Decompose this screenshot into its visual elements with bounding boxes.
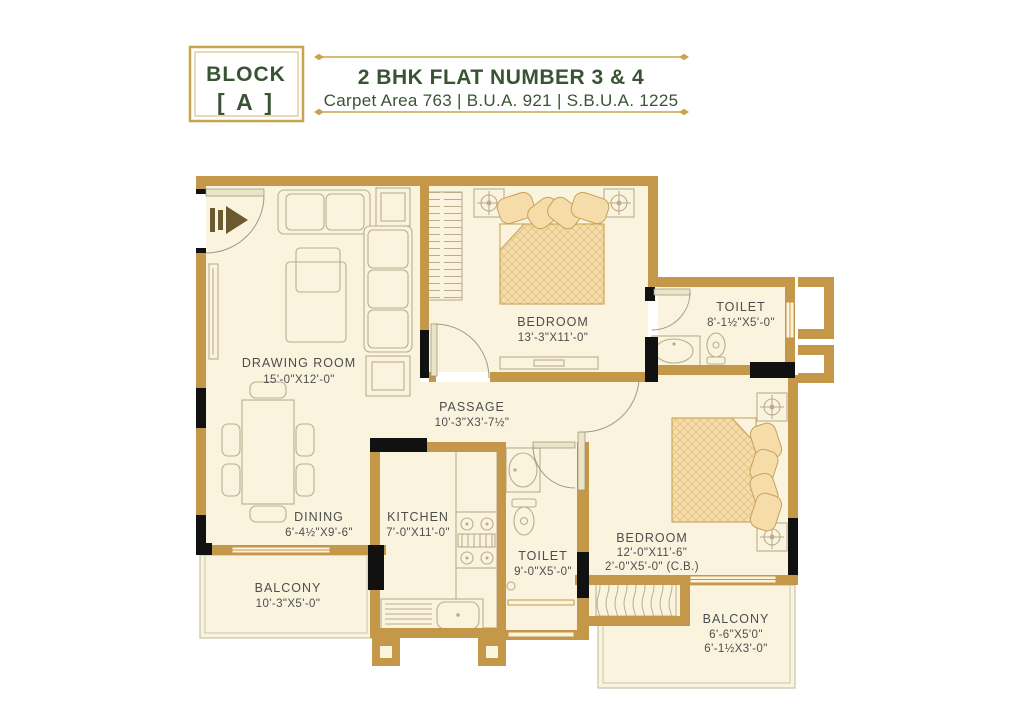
- bedroom-2-label: BEDROOM: [616, 531, 688, 545]
- bedroom-1-label: BEDROOM: [517, 315, 589, 329]
- dining-size: 6'-4½"X9'-6": [285, 527, 353, 539]
- sink-icon: [381, 599, 483, 632]
- wc-icon: [707, 333, 725, 364]
- floor-plan-page: BLOCK [ A ] 2 BHK FLAT NUMBER 3 & 4 Carp…: [0, 0, 1024, 724]
- drawing-room-size: 15'-0"X12'-0": [263, 374, 334, 386]
- bedroom-2-size: 12'-0"X11'-6": [617, 547, 688, 559]
- toilet-1-fixtures: [652, 333, 725, 367]
- kitchen-label: KITCHEN: [387, 510, 449, 524]
- passage-label: PASSAGE: [439, 400, 505, 414]
- bed-icon: [495, 190, 611, 304]
- column-block: [372, 638, 506, 666]
- balcony-2-size: 6'-6"X5'0": [709, 629, 763, 641]
- bedroom-1-size: 13'-3"X11'-0": [518, 332, 589, 344]
- window-icon: [508, 600, 574, 605]
- page-subtitle: Carpet Area 763 | B.U.A. 921 | S.B.U.A. …: [324, 91, 679, 110]
- exterior-projection: [798, 277, 834, 339]
- drawing-room-label: DRAWING ROOM: [242, 356, 356, 370]
- block-label: BLOCK: [206, 63, 286, 86]
- toilet-1-size: 8'-1½"X5'-0": [707, 317, 775, 329]
- armchair-icon: [296, 248, 340, 292]
- bed-icon: [672, 418, 784, 533]
- window-icon: [508, 632, 574, 637]
- dining-table-icon: [242, 400, 294, 504]
- toilet-2-size: 9'-0"X5'-0": [514, 566, 572, 578]
- balcony-2-label: BALCONY: [703, 612, 770, 626]
- cupboard-icon: [596, 583, 676, 616]
- diamond-icon: [314, 109, 324, 115]
- balcony-1-size: 10'-3"X5'-0": [256, 598, 321, 610]
- dining-label: DINING: [294, 510, 344, 524]
- balcony-1-label: BALCONY: [255, 581, 322, 595]
- bench-icon: [500, 357, 598, 369]
- block-letter: [ A ]: [217, 89, 275, 115]
- diamond-icon: [314, 54, 324, 60]
- floor-plan-image: BLOCK [ A ] 2 BHK FLAT NUMBER 3 & 4 Carp…: [0, 0, 1024, 724]
- toilet-2-label: TOILET: [518, 549, 568, 563]
- wardrobe-icon: [426, 192, 462, 300]
- passage-size: 10'-3"X3'-7½": [435, 417, 510, 429]
- block-badge: BLOCK [ A ]: [190, 47, 303, 121]
- diamond-icon: [679, 54, 689, 60]
- toilet-1-label: TOILET: [716, 300, 766, 314]
- bedroom-2-size-2: 2'-0"X5'-0" (C.B.): [605, 561, 699, 573]
- kitchen-size: 7'-0"X11'-0": [386, 527, 450, 539]
- sofa-icon: [364, 226, 412, 352]
- balcony-1-floor: [200, 555, 372, 638]
- stove-icon: [456, 512, 497, 568]
- balcony-2-size-2: 6'-1½X3'-0": [704, 643, 767, 655]
- washbasin-icon: [509, 453, 537, 487]
- page-title: 2 BHK FLAT NUMBER 3 & 4: [358, 66, 644, 89]
- diamond-icon: [679, 109, 689, 115]
- header: BLOCK [ A ] 2 BHK FLAT NUMBER 3 & 4 Carp…: [190, 47, 689, 121]
- exterior-projection: [798, 345, 834, 383]
- wc-icon: [512, 499, 536, 535]
